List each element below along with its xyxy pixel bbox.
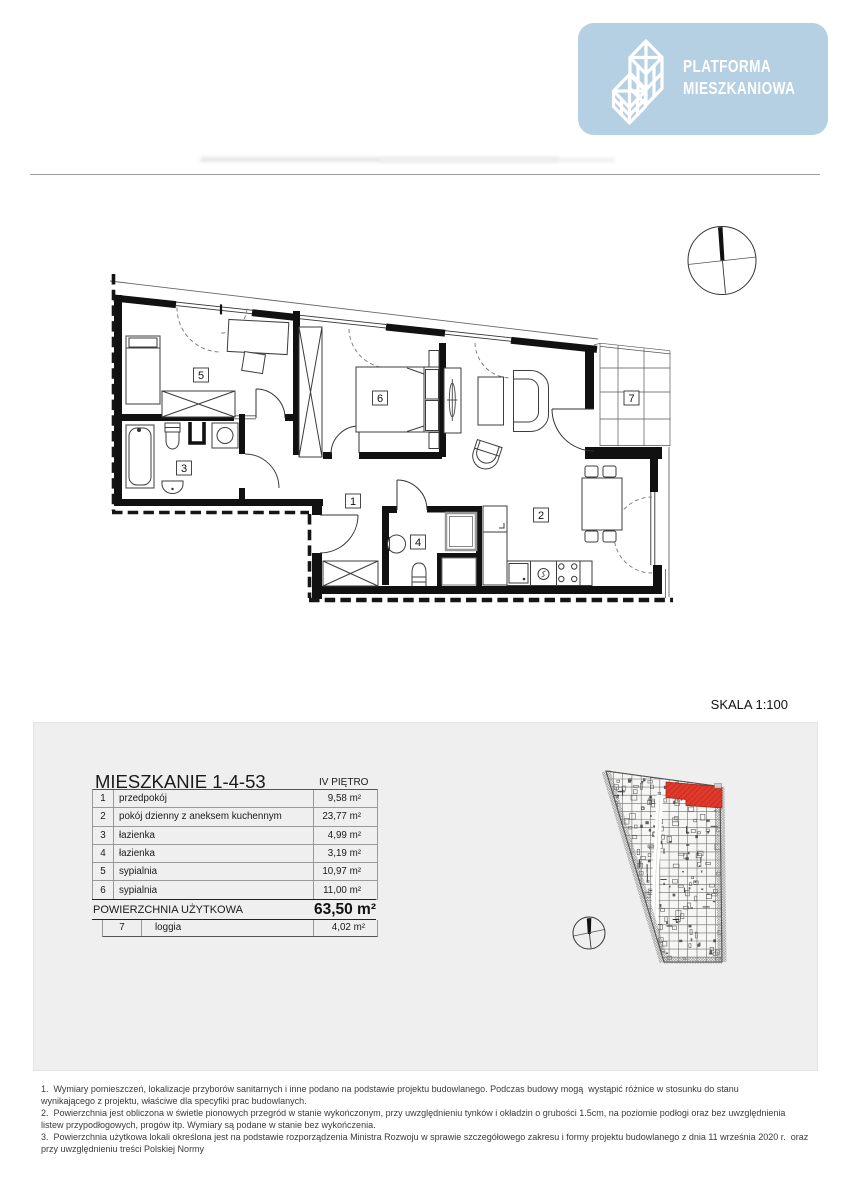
svg-text:7: 7 bbox=[628, 393, 634, 405]
svg-text:2: 2 bbox=[538, 510, 544, 522]
svg-text:6: 6 bbox=[377, 393, 383, 405]
svg-text:5: 5 bbox=[198, 370, 204, 382]
svg-text:4: 4 bbox=[415, 537, 421, 549]
svg-text:1: 1 bbox=[350, 496, 356, 508]
svg-text:3: 3 bbox=[181, 463, 187, 475]
